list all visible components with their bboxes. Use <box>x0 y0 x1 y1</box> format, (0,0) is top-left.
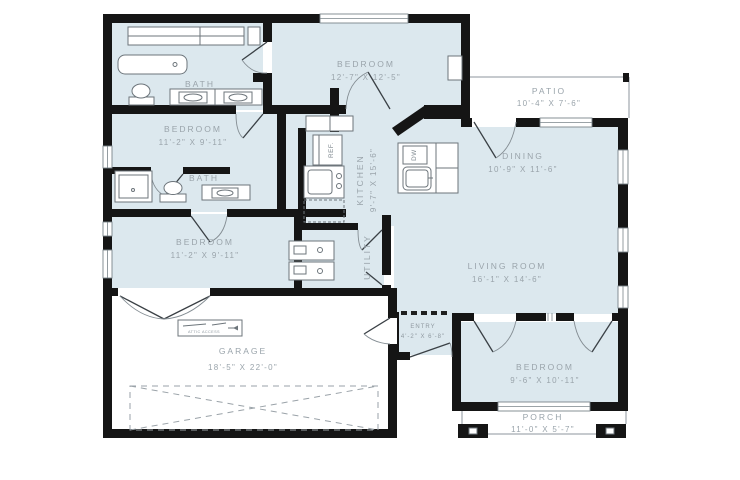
entry-label: ENTRY <box>410 324 435 330</box>
patio-corner-post <box>623 73 629 82</box>
window-bedroom3-left-lower <box>103 250 112 278</box>
double-vanity-icon <box>170 89 262 105</box>
range-icon <box>304 166 344 198</box>
kitchen-island: DW <box>398 143 458 193</box>
washer-icon <box>289 241 334 260</box>
bedroom1-dims: 12'-7" X 12'-5" <box>331 73 401 82</box>
utility-label: UTILITY <box>362 234 372 280</box>
bedroom2-label: BEDROOM <box>164 124 222 134</box>
floor-plan-drawing: REF. DW <box>0 0 740 480</box>
bedroom2-dims: 11'-2" X 9'-11" <box>159 138 228 147</box>
attic-access-label: ATTIC ACCESS <box>188 330 220 334</box>
bedroom4-label: BEDROOM <box>516 362 574 372</box>
shower-icon <box>115 171 152 202</box>
attic-access-panel: ATTIC ACCESS <box>178 320 242 336</box>
patio-label: PATIO <box>532 86 566 96</box>
living-dims: 16'-1" X 14'-6" <box>472 275 542 284</box>
vanity2-icon <box>202 185 250 200</box>
window-dining-top <box>540 118 592 127</box>
window-living-right-upper <box>618 228 628 252</box>
bath2-label: BATH <box>189 173 219 183</box>
bedroom1-label: BEDROOM <box>337 59 395 69</box>
window-bedroom1-top <box>320 14 408 23</box>
dining-label: DINING <box>502 151 544 161</box>
refrigerator-label: REF. <box>328 142 335 158</box>
kitchen-label: KITCHEN <box>355 154 365 205</box>
dining-dims: 10'-9" X 11'-6" <box>488 165 557 174</box>
dryer-icon <box>289 262 334 280</box>
porch-post-right-cap <box>606 428 614 434</box>
bedroom3-label: BEDROOM <box>176 237 234 247</box>
entry-dims: 4'-2" X 6'-8" <box>401 334 445 340</box>
porch-post-left-cap <box>469 428 477 434</box>
window-living-right-lower <box>618 286 628 308</box>
bathtub-icon <box>118 55 187 74</box>
kitchen-dims: 9'-7" X 15'-6" <box>369 148 378 212</box>
porch-dims: 11'-0" X 5'-7" <box>511 425 575 434</box>
floor-plan-canvas: REF. DW <box>0 0 740 480</box>
window-bedroom3-left-upper <box>103 222 112 236</box>
living-label: LIVING ROOM <box>468 261 547 271</box>
bedroom3-dims: 11'-2" X 9'-11" <box>171 251 240 260</box>
dishwasher-label: DW <box>411 149 418 161</box>
window-bedroom4-bottom <box>498 402 590 411</box>
window-dining-right <box>618 150 628 184</box>
garage-dims: 18'-5" X 22'-0" <box>208 363 278 372</box>
patio-floor <box>470 77 628 118</box>
bedroom4-dims: 9'-6" X 10'-11" <box>510 376 579 385</box>
closet-shelf <box>128 27 260 45</box>
patio-dims: 10'-4" X 7'-6" <box>517 99 581 108</box>
refrigerator-icon: REF. <box>313 135 342 165</box>
kitchen-counter-top <box>306 116 353 131</box>
garage-label: GARAGE <box>219 346 267 356</box>
bedroom1-niche <box>448 56 462 80</box>
porch-label: PORCH <box>523 412 564 422</box>
window-bedroom2-left <box>103 146 112 168</box>
bath1-label: BATH <box>185 79 215 89</box>
